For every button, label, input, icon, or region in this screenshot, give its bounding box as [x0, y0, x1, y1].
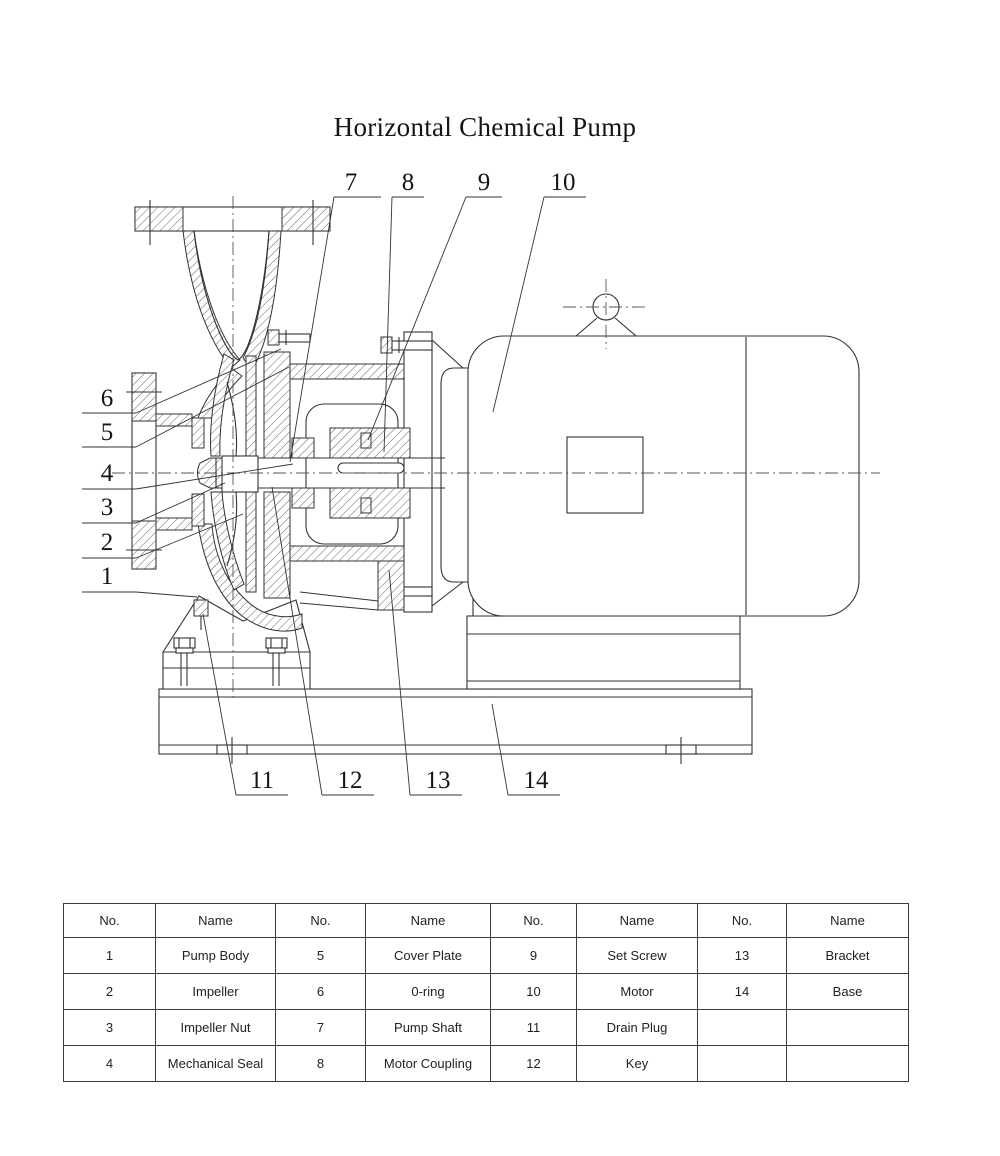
part-number-cell	[698, 1010, 787, 1046]
base-plate	[159, 689, 752, 764]
svg-text:5: 5	[101, 419, 114, 446]
bracket	[290, 364, 404, 610]
parts-table-row: 4Mechanical Seal8Motor Coupling12Key	[64, 1046, 909, 1082]
svg-text:3: 3	[101, 494, 114, 521]
terminal-box	[567, 437, 643, 513]
part-name-cell: Bracket	[787, 938, 909, 974]
page: Horizontal Chemical Pump	[0, 0, 1000, 1156]
parts-table-header-cell: Name	[156, 904, 276, 938]
parts-table-header-cell: Name	[787, 904, 909, 938]
svg-text:2: 2	[101, 529, 114, 556]
parts-table-row: 2Impeller60-ring10Motor14Base	[64, 974, 909, 1010]
part-number-cell: 6	[276, 974, 366, 1010]
part-name-cell: Impeller	[156, 974, 276, 1010]
part-name-cell: Pump Body	[156, 938, 276, 974]
part-name-cell: Motor Coupling	[366, 1046, 491, 1082]
set-screw	[361, 498, 371, 513]
part-name-cell: Mechanical Seal	[156, 1046, 276, 1082]
part-number-cell: 14	[698, 974, 787, 1010]
discharge-flange	[135, 200, 330, 245]
key	[338, 463, 404, 473]
svg-text:6: 6	[101, 385, 114, 412]
parts-table-header-cell: No.	[491, 904, 577, 938]
part-number-cell: 2	[64, 974, 156, 1010]
svg-text:14: 14	[524, 767, 550, 794]
part-number-cell: 4	[64, 1046, 156, 1082]
svg-text:7: 7	[345, 169, 358, 196]
motor	[432, 279, 859, 616]
part-name-cell: Cover Plate	[366, 938, 491, 974]
part-name-cell	[787, 1010, 909, 1046]
part-number-cell	[698, 1046, 787, 1082]
part-number-cell: 7	[276, 1010, 366, 1046]
parts-table-header-cell: Name	[366, 904, 491, 938]
part-name-cell: Drain Plug	[577, 1010, 698, 1046]
callout-4: 4	[82, 460, 293, 489]
pump-diagram: 7 8 9 10 6 5 4	[0, 0, 1000, 900]
motor-block	[467, 616, 740, 689]
svg-text:4: 4	[101, 460, 114, 487]
parts-table-row: 3Impeller Nut7Pump Shaft11Drain Plug	[64, 1010, 909, 1046]
svg-text:13: 13	[426, 767, 451, 794]
part-name-cell: Key	[577, 1046, 698, 1082]
part-number-cell: 11	[491, 1010, 577, 1046]
svg-text:10: 10	[551, 169, 576, 196]
part-number-cell: 1	[64, 938, 156, 974]
part-number-cell: 3	[64, 1010, 156, 1046]
part-number-cell: 9	[491, 938, 577, 974]
part-number-cell: 13	[698, 938, 787, 974]
svg-text:11: 11	[250, 767, 274, 794]
part-name-cell: Pump Shaft	[366, 1010, 491, 1046]
part-number-cell: 10	[491, 974, 577, 1010]
svg-text:9: 9	[478, 169, 491, 196]
parts-table-header-cell: No.	[698, 904, 787, 938]
parts-table-header-row: No.NameNo.NameNo.NameNo.Name	[64, 904, 909, 938]
parts-table-row: 1Pump Body5Cover Plate9Set Screw13Bracke…	[64, 938, 909, 974]
parts-table-header-cell: No.	[64, 904, 156, 938]
part-name-cell: Impeller Nut	[156, 1010, 276, 1046]
svg-text:12: 12	[338, 767, 363, 794]
part-name-cell	[787, 1046, 909, 1082]
part-number-cell: 8	[276, 1046, 366, 1082]
part-number-cell: 5	[276, 938, 366, 974]
svg-text:8: 8	[402, 169, 415, 196]
svg-text:1: 1	[101, 563, 114, 590]
parts-table: No.NameNo.NameNo.NameNo.Name1Pump Body5C…	[63, 903, 909, 1082]
part-name-cell: Motor	[577, 974, 698, 1010]
part-name-cell: Base	[787, 974, 909, 1010]
parts-table-header-cell: Name	[577, 904, 698, 938]
volute-funnel	[183, 231, 281, 370]
part-name-cell: Set Screw	[577, 938, 698, 974]
part-name-cell: 0-ring	[366, 974, 491, 1010]
parts-table-header-cell: No.	[276, 904, 366, 938]
part-number-cell: 12	[491, 1046, 577, 1082]
